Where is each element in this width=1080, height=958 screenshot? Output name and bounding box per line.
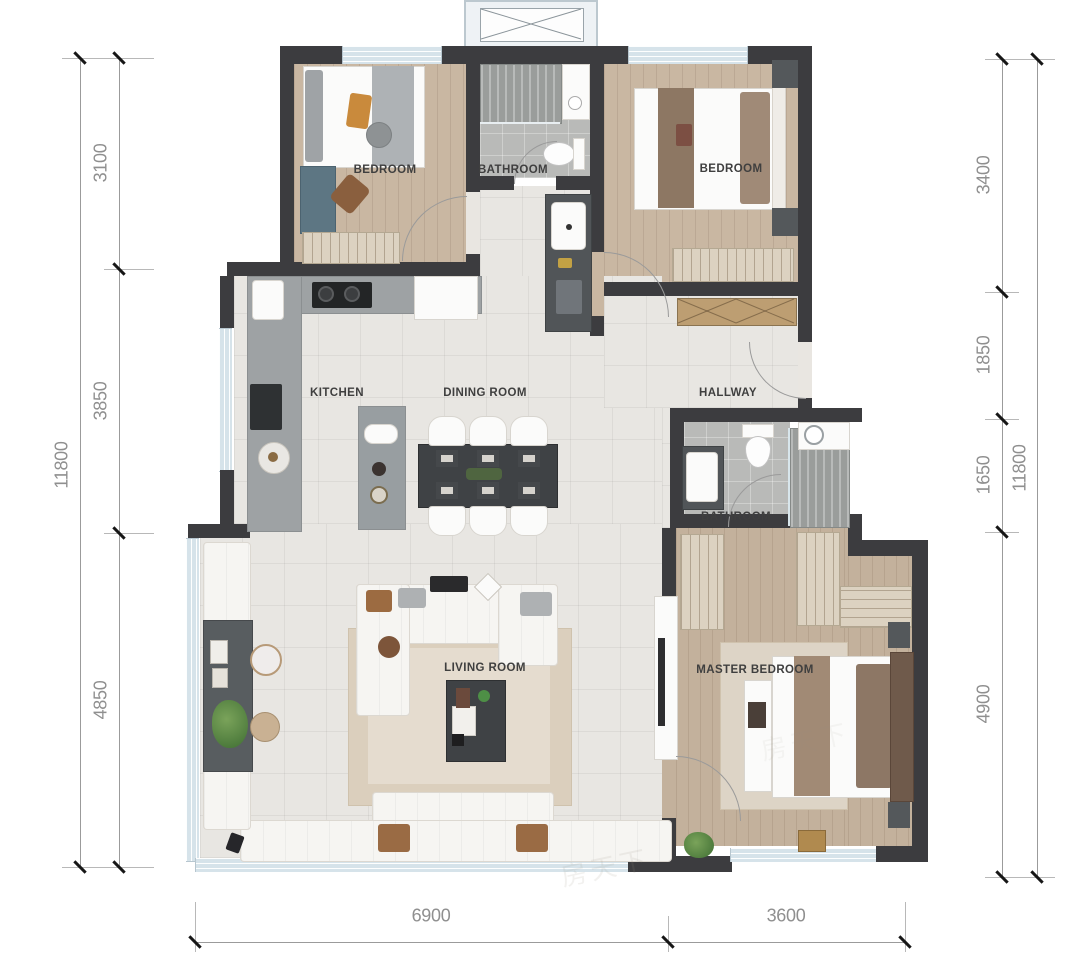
dim-label-right-1850: 1850 (974, 336, 995, 375)
master-bench-art (748, 702, 766, 728)
master-bed-headboard (890, 652, 914, 802)
kitchen-island-sink (364, 424, 398, 444)
wall-master-right (912, 540, 928, 862)
bedroom-2-runner (658, 88, 694, 208)
wall-bathroom-1-bottom-right (556, 176, 590, 190)
dim-label-left-3100: 3100 (91, 144, 112, 183)
bedroom-2-nightstand-bottom (772, 208, 798, 236)
master-bedroom-plant (684, 832, 714, 858)
wall-bedroom-1-left (280, 46, 294, 268)
master-door-opening (662, 756, 676, 818)
bedroom-1-pillows (305, 70, 323, 162)
wall-kitchen-left-upper (220, 276, 234, 328)
dining-chair (510, 416, 548, 446)
bedroom-1-door-opening (466, 192, 480, 254)
dining-table-centerpiece (466, 468, 502, 480)
living-room-side-table (378, 636, 400, 658)
dim-label-right-4900: 4900 (974, 685, 995, 724)
bedroom-1-blanket (372, 66, 414, 166)
dim-line (1002, 59, 1003, 877)
dim-line (1037, 59, 1038, 877)
bedroom-2-nightstand-top (772, 60, 798, 88)
bench-pillow-left (378, 824, 410, 852)
dim-label-right-3400: 3400 (974, 156, 995, 195)
dining-chair (469, 416, 507, 446)
living-room-label: LIVING ROOM (444, 662, 526, 674)
bedroom-2-wardrobe (672, 248, 794, 282)
stone-console-frame-1 (210, 640, 228, 664)
dining-placemat (477, 450, 499, 467)
dim-extension (62, 58, 154, 59)
dim-label-bottom-6900: 6900 (412, 906, 451, 927)
kitchen-label: KITCHEN (310, 387, 364, 399)
kitchen-burner-left (318, 286, 334, 302)
dim-label-right-total: 11800 (1010, 444, 1031, 491)
wall-right-stub (798, 398, 812, 410)
dim-extension (985, 877, 1055, 878)
kitchen-window (219, 328, 232, 472)
bedroom-2-bed-tray (676, 124, 692, 146)
bathroom-1-side-panel (562, 64, 590, 120)
round-pouf-2 (250, 712, 280, 742)
bedroom-2-pillows (740, 92, 770, 204)
dim-line (80, 58, 81, 867)
bathroom-2-shower-glass (788, 428, 790, 526)
bedroom-1-desk (300, 166, 336, 234)
wall-bathroom-2-top (670, 408, 862, 422)
coffee-table-book (456, 688, 470, 708)
dining-placemat (518, 450, 540, 467)
bathroom-2-label: BATHROOM (701, 511, 771, 523)
bathroom-1-toilet-tank (573, 138, 585, 170)
bathroom-2-sink (686, 452, 718, 502)
bedroom-1-label: BEDROOM (354, 164, 417, 176)
bench-pillow-right (516, 824, 548, 852)
stone-console-frame-2 (212, 668, 228, 688)
hallway-floor-sliver (662, 408, 670, 528)
tv-screen (658, 638, 665, 726)
bathroom-2-washer-door (804, 425, 824, 445)
master-wardrobe-mid (796, 532, 840, 626)
kitchen-plate-center (268, 452, 278, 462)
kitchen-island-decor-1 (372, 462, 386, 476)
master-bedroom-label: MASTER BEDROOM (696, 664, 813, 676)
bedroom-1-throw (346, 93, 373, 130)
bedroom-1-round-cushion (366, 122, 392, 148)
dining-room-label: DINING ROOM (443, 387, 527, 399)
hallway-label: HALLWAY (699, 387, 757, 399)
bedroom-1-wardrobe (302, 232, 400, 264)
dining-placemat (436, 450, 458, 467)
floor-plan-canvas: BEDROOM BATHROOM BEDROOM KITCHEN DINING … (0, 0, 1080, 958)
coffee-table-decor (452, 734, 464, 746)
balcony-sofa-lower (203, 768, 251, 830)
master-bed-pillows (856, 664, 892, 788)
living-room-sofa-console-decor (430, 576, 468, 592)
kitchen-sink (252, 280, 284, 320)
dim-label-left-3850: 3850 (91, 382, 112, 421)
dining-placemat (436, 482, 458, 499)
master-wardrobe-left (680, 534, 724, 630)
dining-chair (510, 506, 548, 536)
dining-placemat (477, 482, 499, 499)
round-pouf-1 (250, 644, 282, 676)
kitchen-oven (250, 384, 282, 430)
dining-chair (469, 506, 507, 536)
dim-label-left-4850: 4850 (91, 681, 112, 720)
dining-placemat (518, 482, 540, 499)
wall-bathroom-1-bottom-left (466, 176, 514, 190)
master-bedroom-box (798, 830, 826, 852)
coffee-table-tray (452, 706, 476, 736)
dim-extension (104, 533, 154, 534)
vanity-faucet (566, 224, 572, 230)
master-nightstand-bottom (888, 802, 910, 828)
vanity-decor-gold (558, 258, 572, 268)
dining-chair (428, 506, 466, 536)
bedroom-1-window (342, 46, 442, 64)
master-nightstand-top (888, 622, 910, 648)
living-room-pillow-gray-2 (520, 592, 552, 616)
coffee-table-plant (478, 690, 490, 702)
dim-label-right-1650: 1650 (974, 456, 995, 495)
bedroom-2-label: BEDROOM (700, 163, 763, 175)
living-room-plant (212, 700, 248, 748)
bedroom-2-door-opening (590, 252, 604, 316)
dim-extension (104, 269, 154, 270)
wall-kitchen-left-lower (220, 470, 234, 524)
elevator-x-icon (481, 9, 581, 39)
bathroom-1-drain (568, 96, 582, 110)
wall-balcony-step (188, 524, 250, 538)
bathroom-1-shower-glass (480, 122, 560, 124)
dim-extension (62, 867, 154, 868)
bedroom-2-headboard (772, 86, 786, 212)
dim-extension (985, 59, 1055, 60)
dim-line (119, 58, 120, 867)
hallway-console-x-icon (678, 299, 794, 323)
bathroom-1-label: BATHROOM (478, 164, 548, 176)
dining-chair (428, 416, 466, 446)
balcony-sofa-upper (203, 542, 251, 624)
dim-line (195, 942, 906, 943)
dim-label-bottom-3600: 3600 (767, 906, 806, 927)
kitchen-burner-right (344, 286, 360, 302)
wall-right-upper (798, 46, 812, 342)
living-room-west-glazing (186, 538, 199, 862)
kitchen-fridge (414, 276, 478, 320)
kitchen-island-decor-2 (370, 486, 388, 504)
wall-master-step (848, 540, 928, 556)
vanity-towels (556, 280, 582, 314)
bedroom-2-window (628, 46, 748, 64)
wall-bedroom-1-bottom (227, 262, 480, 276)
living-room-pillow-brown (366, 590, 392, 612)
dim-label-left-total: 11800 (52, 441, 73, 488)
dim-extension (668, 916, 669, 952)
bathroom-1-shower (480, 64, 562, 124)
living-room-pillow-gray-1 (398, 588, 426, 608)
